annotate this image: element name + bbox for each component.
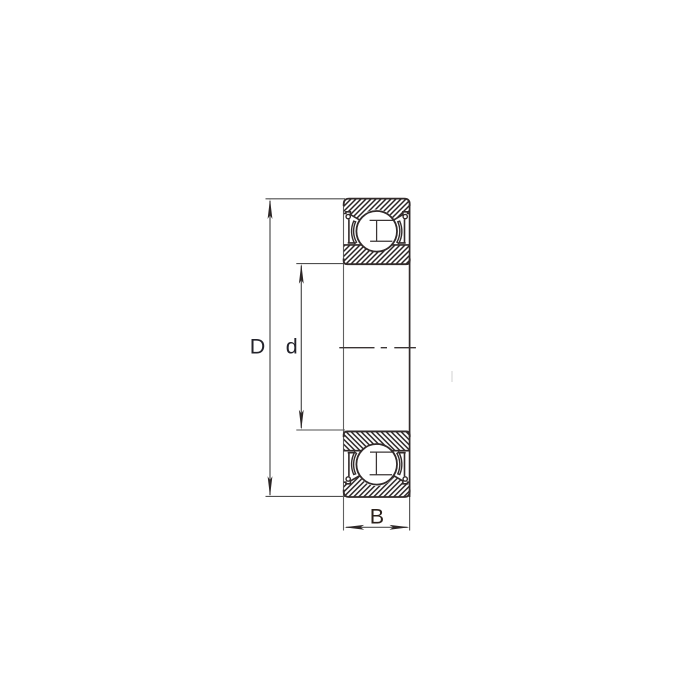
svg-text:B: B xyxy=(370,505,384,529)
svg-text:d: d xyxy=(286,334,298,358)
svg-text:D: D xyxy=(250,334,266,358)
